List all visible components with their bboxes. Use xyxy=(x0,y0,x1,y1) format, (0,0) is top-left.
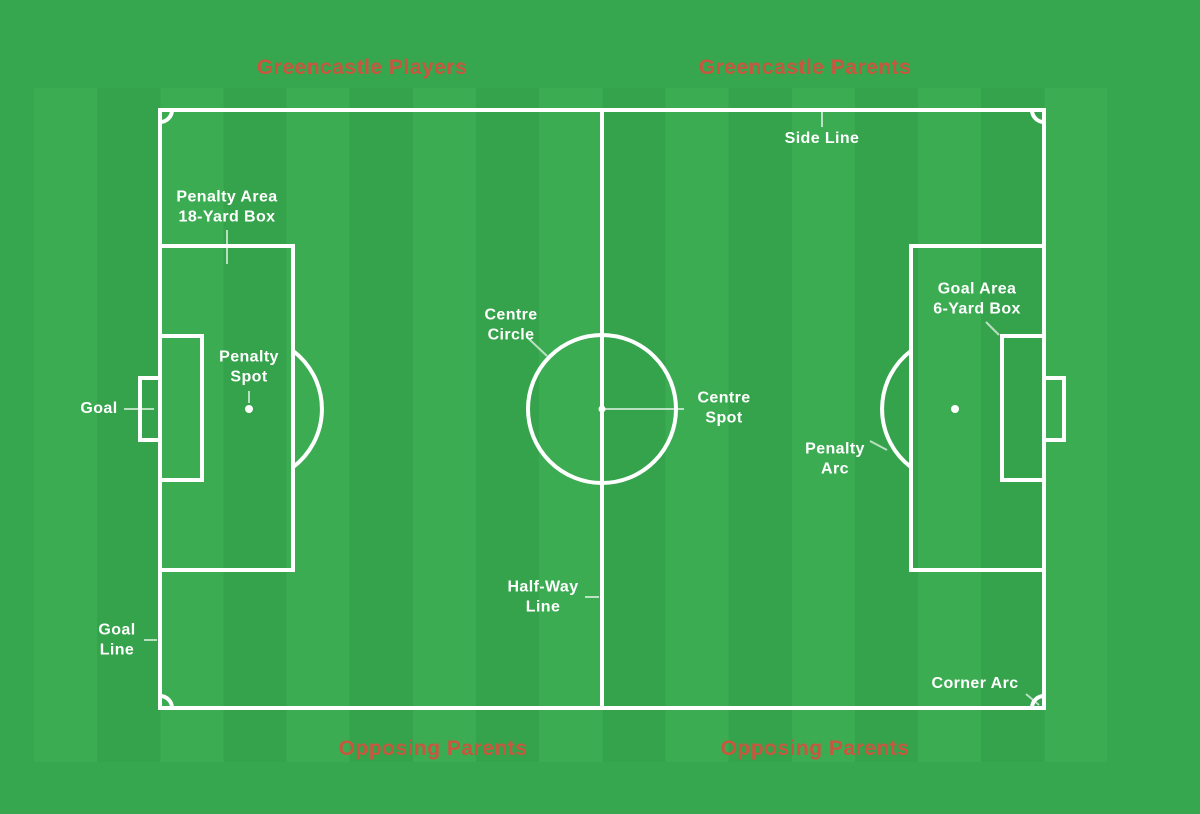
right-goal xyxy=(1044,378,1064,440)
right-goal-area xyxy=(1002,336,1044,480)
right-penalty-spot xyxy=(951,405,959,413)
right-penalty-area xyxy=(911,246,1044,570)
penalty-arc-callout xyxy=(870,441,887,450)
left-penalty-area xyxy=(160,246,293,570)
centre-spot xyxy=(599,406,606,413)
left-penalty-spot xyxy=(245,405,253,413)
left-goal-area xyxy=(160,336,202,480)
goal-area-callout xyxy=(986,322,999,335)
pitch-markings xyxy=(0,0,1200,814)
pitch-diagram: Greencastle Players Greencastle Parents … xyxy=(0,0,1200,814)
centre-circle-callout xyxy=(529,339,547,356)
left-penalty-arc xyxy=(293,351,322,467)
